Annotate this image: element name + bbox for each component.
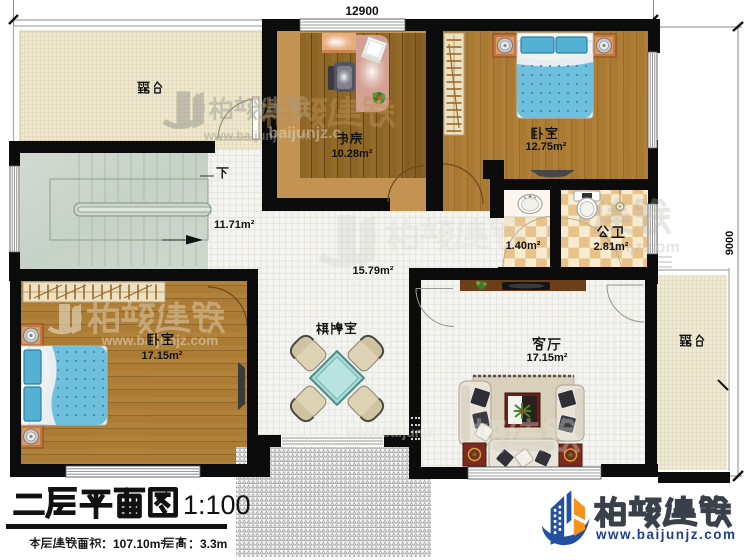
svg-text:17.15m²: 17.15m² bbox=[142, 350, 183, 362]
svg-text:15.79m²: 15.79m² bbox=[353, 265, 394, 277]
svg-text:www.baijunjz.com: www.baijunjz.com bbox=[101, 333, 219, 348]
svg-text:10.28m²: 10.28m² bbox=[332, 148, 373, 160]
svg-text:baijunjz.c: baijunjz.c bbox=[269, 125, 342, 142]
svg-text:：3.3m: ：3.3m bbox=[188, 537, 227, 551]
svg-text:1:100: 1:100 bbox=[183, 490, 251, 520]
svg-text:11.71m²: 11.71m² bbox=[214, 219, 255, 231]
svg-text:9000: 9000 bbox=[724, 231, 736, 255]
svg-text:1.40m²: 1.40m² bbox=[506, 240, 541, 252]
svg-text:2.81m²: 2.81m² bbox=[594, 241, 629, 253]
svg-text:：107.10m²: ：107.10m² bbox=[101, 537, 164, 551]
svg-text:www.baijunjz: www.baijunjz bbox=[345, 424, 434, 440]
svg-text:17.15m²: 17.15m² bbox=[527, 352, 568, 364]
svg-text:www.baijunjz.com: www.baijunjz.com bbox=[595, 527, 737, 542]
svg-text:12.75m²: 12.75m² bbox=[526, 141, 567, 153]
svg-text:12900: 12900 bbox=[345, 4, 379, 18]
